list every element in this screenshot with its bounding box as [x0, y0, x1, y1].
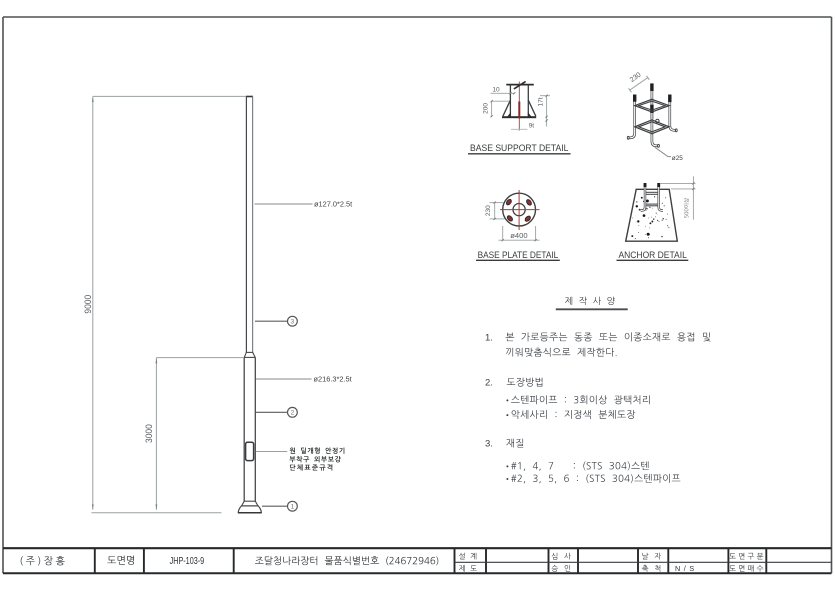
svg-text:200: 200 [483, 103, 490, 114]
svg-text:3.: 3. [485, 439, 493, 450]
svg-text:BASE SUPPORT DETAIL: BASE SUPPORT DETAIL [470, 143, 568, 153]
svg-text:1: 1 [291, 504, 295, 511]
svg-text:9000: 9000 [83, 295, 93, 314]
svg-text:ø400: ø400 [510, 231, 527, 240]
svg-text:17t: 17t [538, 97, 545, 106]
svg-text:ø216.3*2.5t: ø216.3*2.5t [314, 375, 352, 384]
svg-text:2.: 2. [485, 378, 493, 389]
svg-text:10: 10 [492, 86, 500, 93]
svg-text:ø127.0*2.5t: ø127.0*2.5t [314, 200, 352, 209]
svg-text:3: 3 [291, 319, 295, 326]
svg-text:BASE PLATE DETAIL: BASE PLATE DETAIL [478, 250, 559, 260]
svg-text:N / S: N / S [675, 564, 695, 573]
svg-text:2: 2 [291, 410, 295, 417]
svg-text:ANCHOR DETAIL: ANCHOR DETAIL [619, 250, 687, 260]
svg-text:1.: 1. [485, 332, 493, 343]
svg-text:9t: 9t [529, 122, 535, 129]
svg-text:ø25: ø25 [672, 155, 683, 162]
svg-text:JHP-103-9: JHP-103-9 [170, 555, 205, 567]
svg-text:3000: 3000 [144, 424, 154, 443]
svg-text:230: 230 [485, 205, 492, 216]
